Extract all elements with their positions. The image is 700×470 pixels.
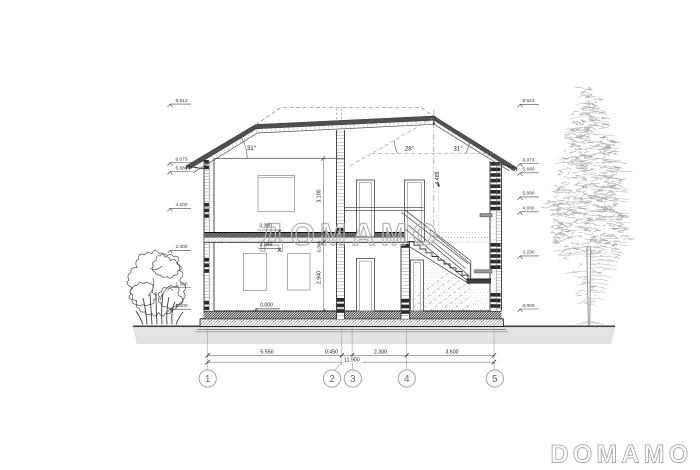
svg-text:0.300: 0.300 [317,241,322,253]
svg-text:2.300: 2.300 [374,349,387,355]
svg-text:4.485: 4.485 [435,171,441,184]
svg-text:5.090: 5.090 [522,191,534,197]
svg-text:8.513: 8.513 [175,98,187,104]
svg-text:31°: 31° [453,145,463,152]
svg-text:3: 3 [350,374,356,385]
svg-text:3.600: 3.600 [445,349,458,355]
svg-text:О: О [290,216,315,252]
svg-text:28°: 28° [405,145,415,152]
svg-text:6.073: 6.073 [175,156,187,162]
svg-text:О: О [412,216,437,252]
svg-text:2.230: 2.230 [522,250,534,256]
svg-text:М: М [320,216,346,252]
svg-text:2: 2 [329,374,335,385]
svg-text:3.100: 3.100 [317,189,323,202]
svg-text:5: 5 [492,374,498,385]
svg-text:0.000: 0.000 [260,303,273,309]
svg-text:3.280: 3.280 [259,224,272,230]
svg-text:8.513: 8.513 [522,98,534,104]
svg-text:0.000: 0.000 [522,303,534,309]
svg-text:2.400: 2.400 [175,244,187,250]
svg-text:М: М [381,216,407,252]
svg-text:6.073: 6.073 [522,157,534,163]
svg-text:5.680: 5.680 [522,167,534,173]
svg-text:4.100: 4.100 [175,202,187,208]
svg-text:4: 4 [404,374,410,385]
svg-text:4.030: 4.030 [522,206,534,212]
svg-text:DOMAMO: DOMAMO [551,441,693,469]
svg-text:2.940: 2.940 [317,271,323,284]
svg-text:31°: 31° [247,145,257,152]
svg-text:5.680: 5.680 [175,165,187,171]
svg-text:1: 1 [205,374,211,385]
svg-text:0.450: 0.450 [325,349,338,355]
svg-text:2.940: 2.940 [260,242,273,248]
svg-text:5.550: 5.550 [260,349,273,355]
svg-text:11.900: 11.900 [344,358,360,364]
svg-text:А: А [352,216,375,252]
